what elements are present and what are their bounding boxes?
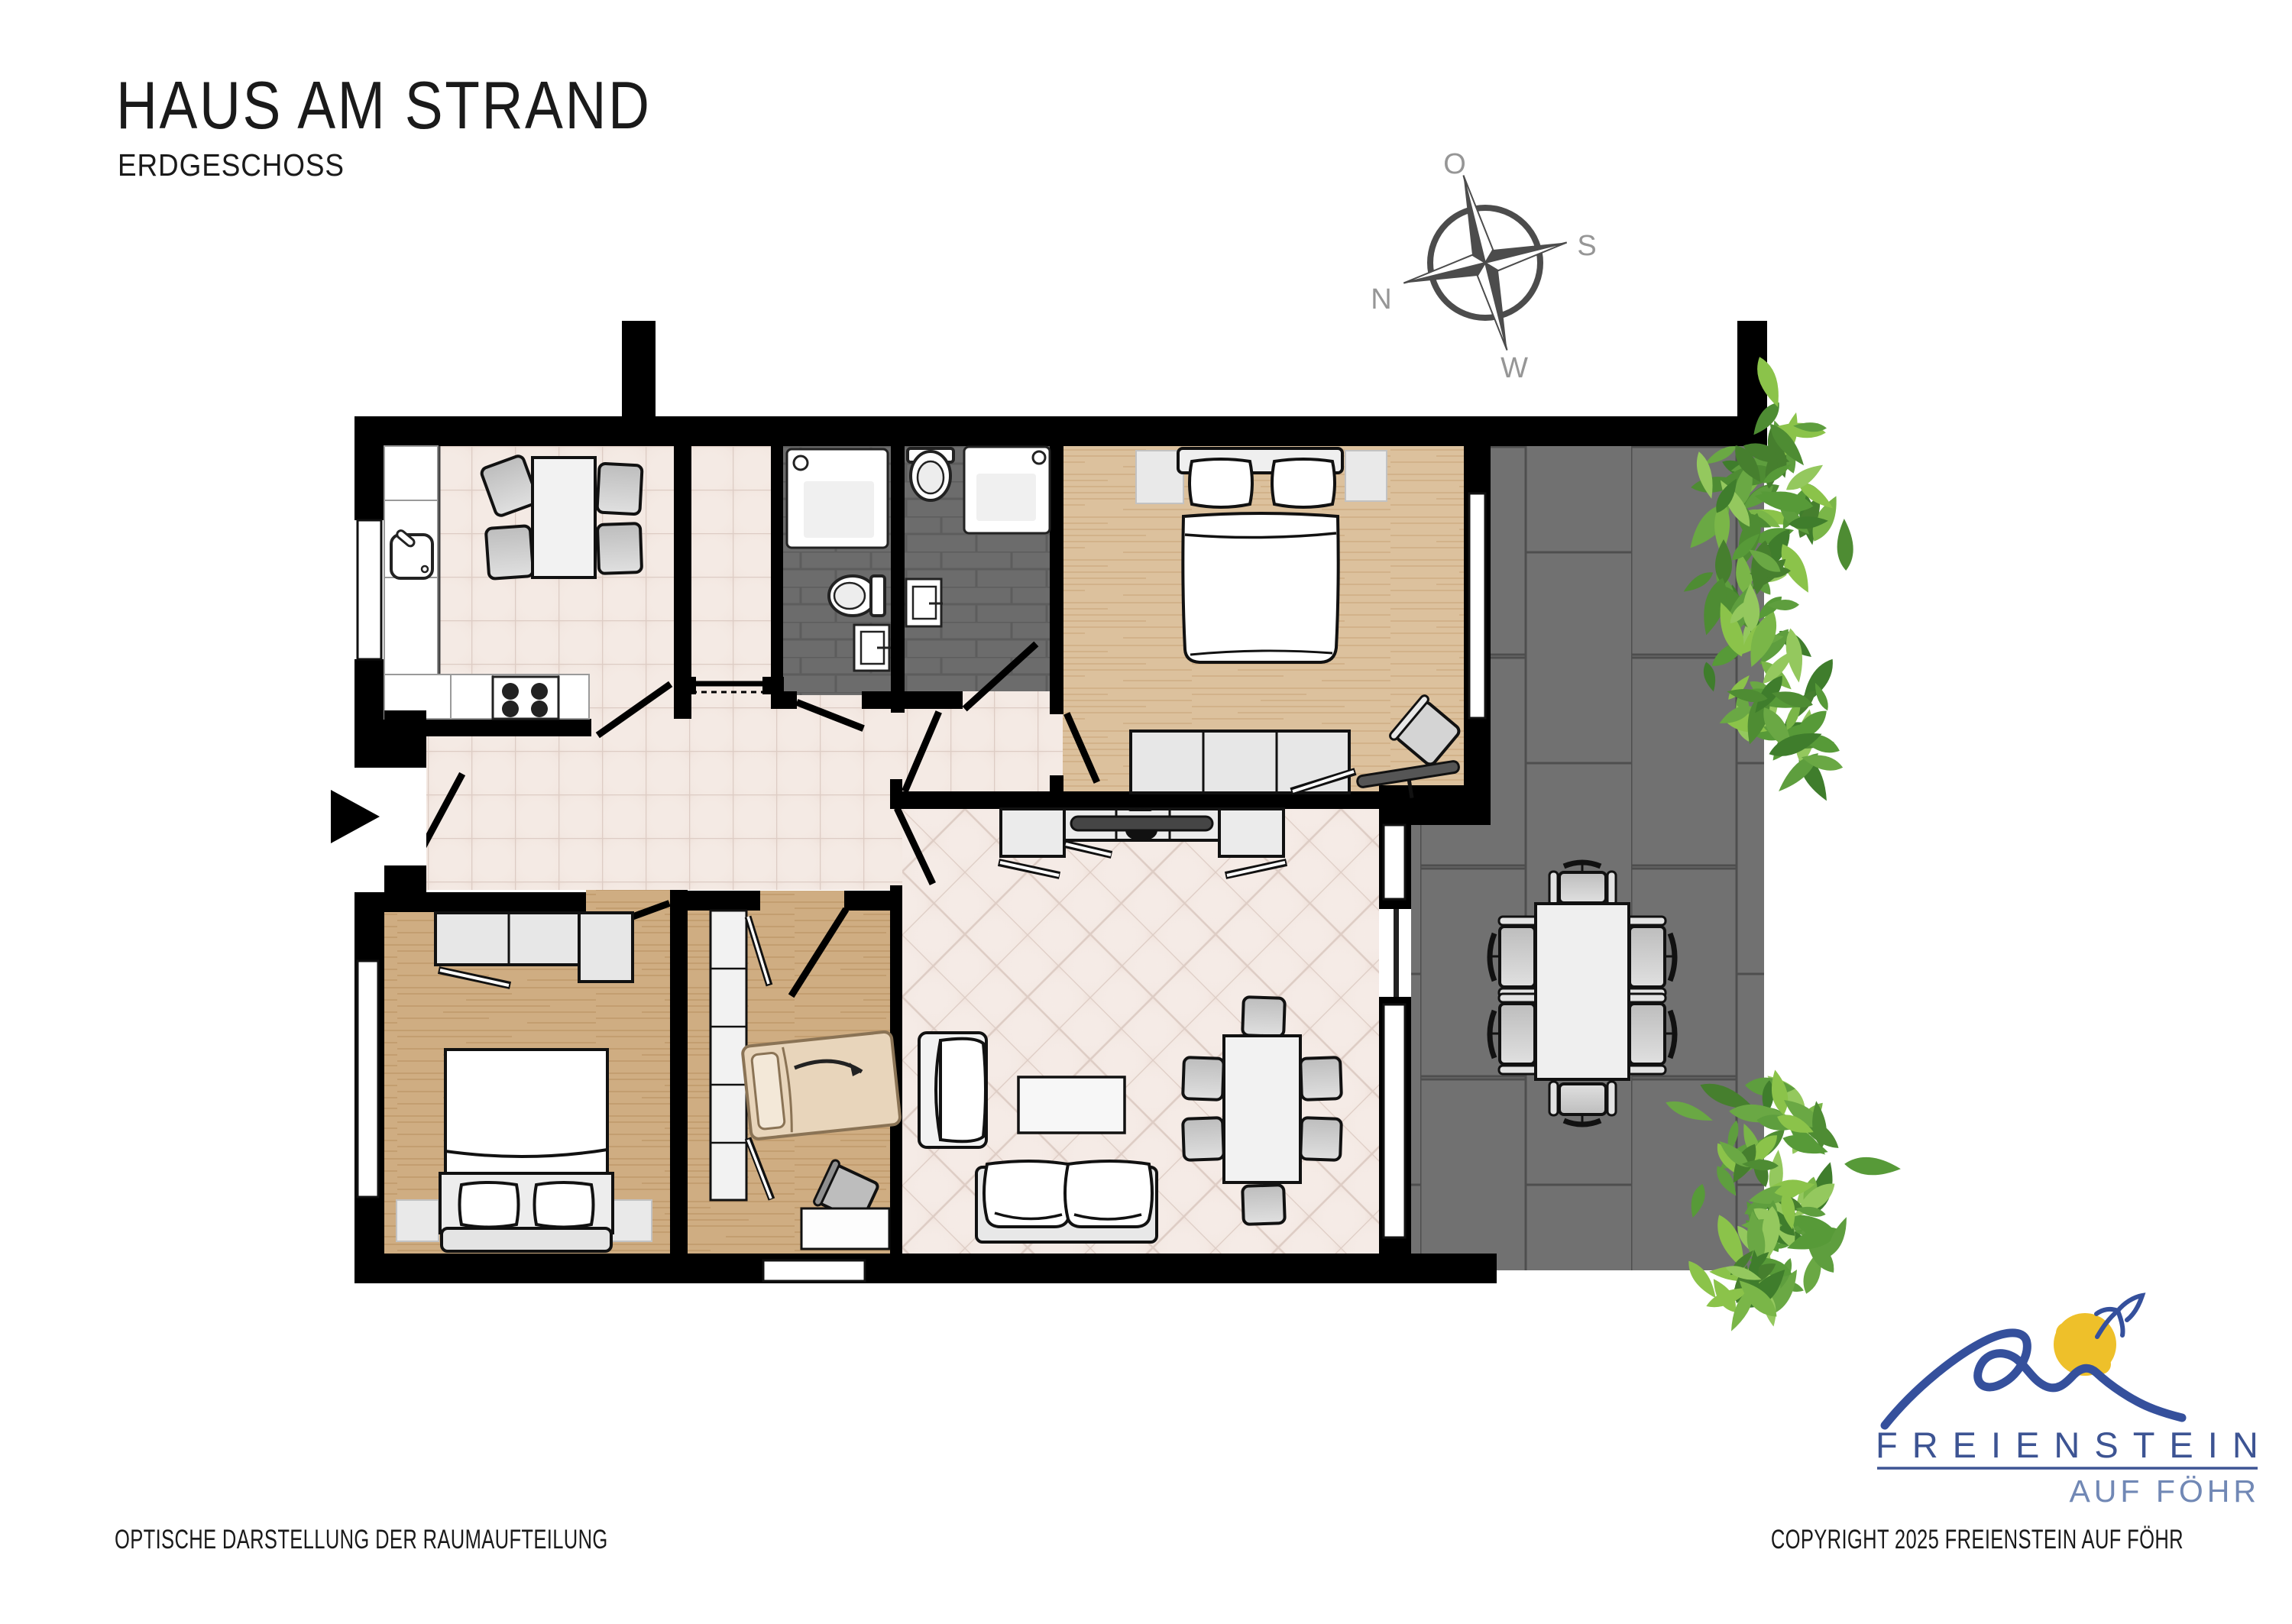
svg-text:N: N — [1371, 283, 1391, 315]
svg-text:HAUS AM STRAND: HAUS AM STRAND — [116, 68, 652, 143]
svg-text:COPYRIGHT 2025 FREIENSTEIN AUF: COPYRIGHT 2025 FREIENSTEIN AUF FÖHR — [1771, 1525, 2184, 1554]
svg-text:FREIENSTEIN: FREIENSTEIN — [1876, 1425, 2273, 1465]
svg-text:W: W — [1500, 352, 1528, 384]
svg-text:AUF FÖHR: AUF FÖHR — [2069, 1474, 2260, 1509]
svg-text:OPTISCHE DARSTELLUNG DER RAUMA: OPTISCHE DARSTELLUNG DER RAUMAUFTEILUNG — [115, 1525, 608, 1554]
svg-text:O: O — [1443, 148, 1466, 180]
svg-text:ERDGESCHOSS: ERDGESCHOSS — [118, 148, 345, 183]
svg-text:S: S — [1577, 230, 1596, 262]
